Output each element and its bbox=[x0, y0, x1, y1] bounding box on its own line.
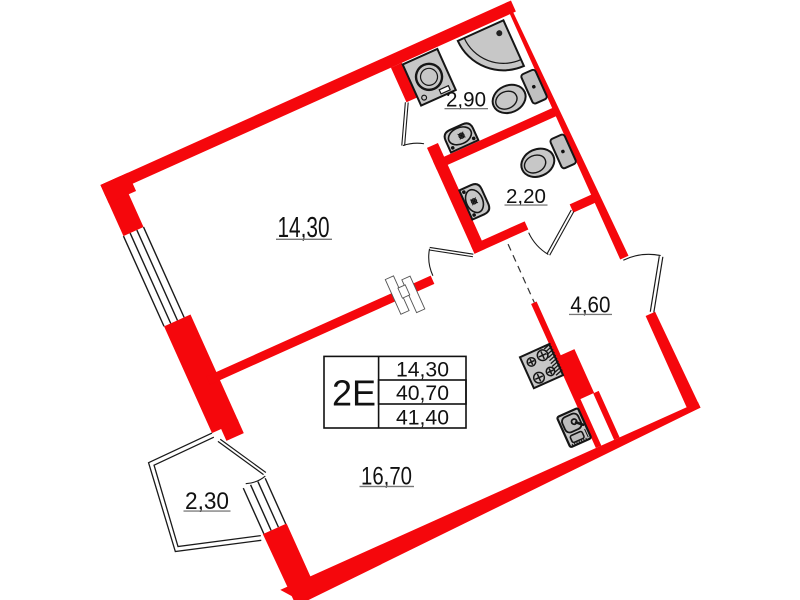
svg-text:41,40: 41,40 bbox=[396, 406, 449, 430]
svg-text:2E: 2E bbox=[332, 373, 376, 414]
svg-text:14,30: 14,30 bbox=[396, 358, 449, 382]
svg-text:40,70: 40,70 bbox=[396, 381, 449, 405]
svg-text:4,60: 4,60 bbox=[570, 291, 610, 317]
